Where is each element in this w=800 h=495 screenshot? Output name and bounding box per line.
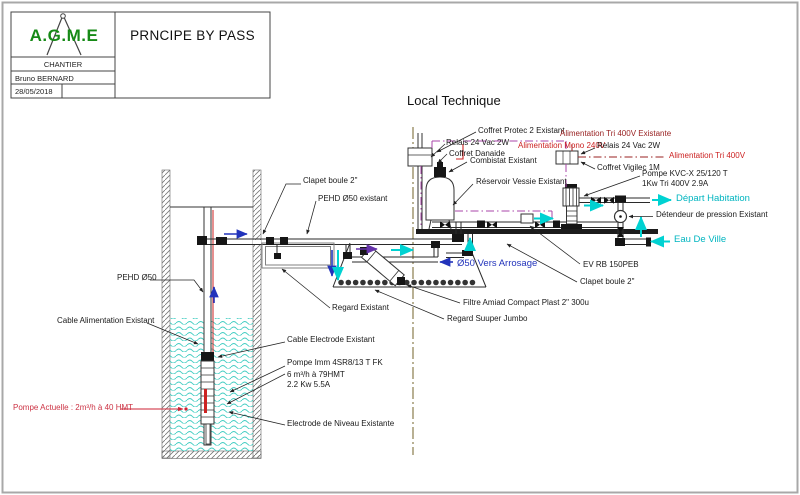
label-pehd-50: PEHD Ø50 — [117, 274, 157, 283]
electrode — [206, 424, 210, 444]
label-regard-existant: Regard Existant — [332, 304, 389, 313]
company-logo: A.G.M.E — [14, 26, 114, 46]
label-pompe-imm-3: 2.2 Kw 5.5A — [287, 381, 330, 390]
label-alimentation-tri-existante: Alimentation Tri 400V Existante — [560, 130, 671, 139]
label-detendeur: Détendeur de pression Existant — [656, 211, 768, 220]
label-alimentation-tri: Alimentation Tri 400V — [669, 152, 745, 161]
title-block-grid — [11, 12, 270, 98]
label-coffret-protec: Coffret Protec 2 Existant — [478, 127, 565, 136]
label-pompe-actuelle: Pompe Actuelle : 2m³/h à 40 HMT — [13, 404, 133, 413]
label-alimentation-mono: Alimentation Mono 240V — [518, 142, 605, 151]
schematic-canvas: A.G.M.E CHANTIER Bruno BERNARD 28/05/201… — [0, 0, 800, 495]
drawing-title: PRNCIPE BY PASS — [116, 28, 269, 43]
label-pompe-imm-2: 6 m³/h à 79HMT — [287, 371, 345, 380]
label-eau-de-ville: Eau De Ville — [674, 235, 726, 245]
section-heading-local-technique: Local Technique — [407, 93, 501, 108]
label-filtre-amiad: Filtre Amiad Compact Plast 2" 300u — [463, 299, 589, 308]
label-pehd-existant: PEHD Ø50 existant — [318, 195, 387, 204]
label-pompe-kvc-1: Pompe KVC-X 25/120 T — [642, 170, 728, 179]
author-name: Bruno BERNARD — [15, 74, 74, 83]
label-vers-arrosage: Ø50 Vers Arrosage — [457, 259, 537, 269]
label-regard-jumbo: Regard Suuper Jumbo — [447, 315, 528, 324]
label-depart-habitation: Départ Habitation — [676, 194, 750, 204]
label-ev-rb: EV RB 150PEB — [583, 261, 639, 270]
regard-existant — [262, 243, 334, 268]
combistat — [434, 167, 446, 177]
main-pipe — [200, 239, 462, 245]
label-reservoir-vessie: Réservoir Vessie Existant — [476, 178, 567, 187]
label-pompe-imm-1: Pompe Imm 4SR8/13 T FK — [287, 359, 383, 368]
coffret-box — [408, 148, 432, 166]
relay-box — [556, 151, 578, 164]
label-relais-right: Relais 24 Vac 2W — [597, 142, 660, 151]
bladder-tank — [426, 162, 454, 229]
drawing-date: 28/05/2018 — [15, 87, 53, 96]
pressure-reducer — [615, 211, 627, 223]
label-clapet-boule-left: Clapet boule 2" — [303, 177, 357, 186]
label-combistat: Combistat Existant — [470, 157, 537, 166]
label-clapet-boule-right: Clapet boule 2" — [580, 278, 634, 287]
diagram-linework — [0, 0, 800, 495]
label-cable-electrode: Cable Electrode Existant — [287, 336, 375, 345]
label-pompe-kvc-2: 1Kw Tri 400V 2.9A — [642, 180, 708, 189]
label-electrode-niveau: Electrode de Niveau Existante — [287, 420, 394, 429]
ev-solenoid-valve — [521, 214, 533, 223]
manifold-piping — [432, 198, 650, 258]
label-relais-left: Relais 24 Vac 2W — [446, 139, 509, 148]
chantier-label: CHANTIER — [11, 60, 115, 69]
label-cable-alimentation: Cable Alimentation Existant — [57, 317, 154, 326]
